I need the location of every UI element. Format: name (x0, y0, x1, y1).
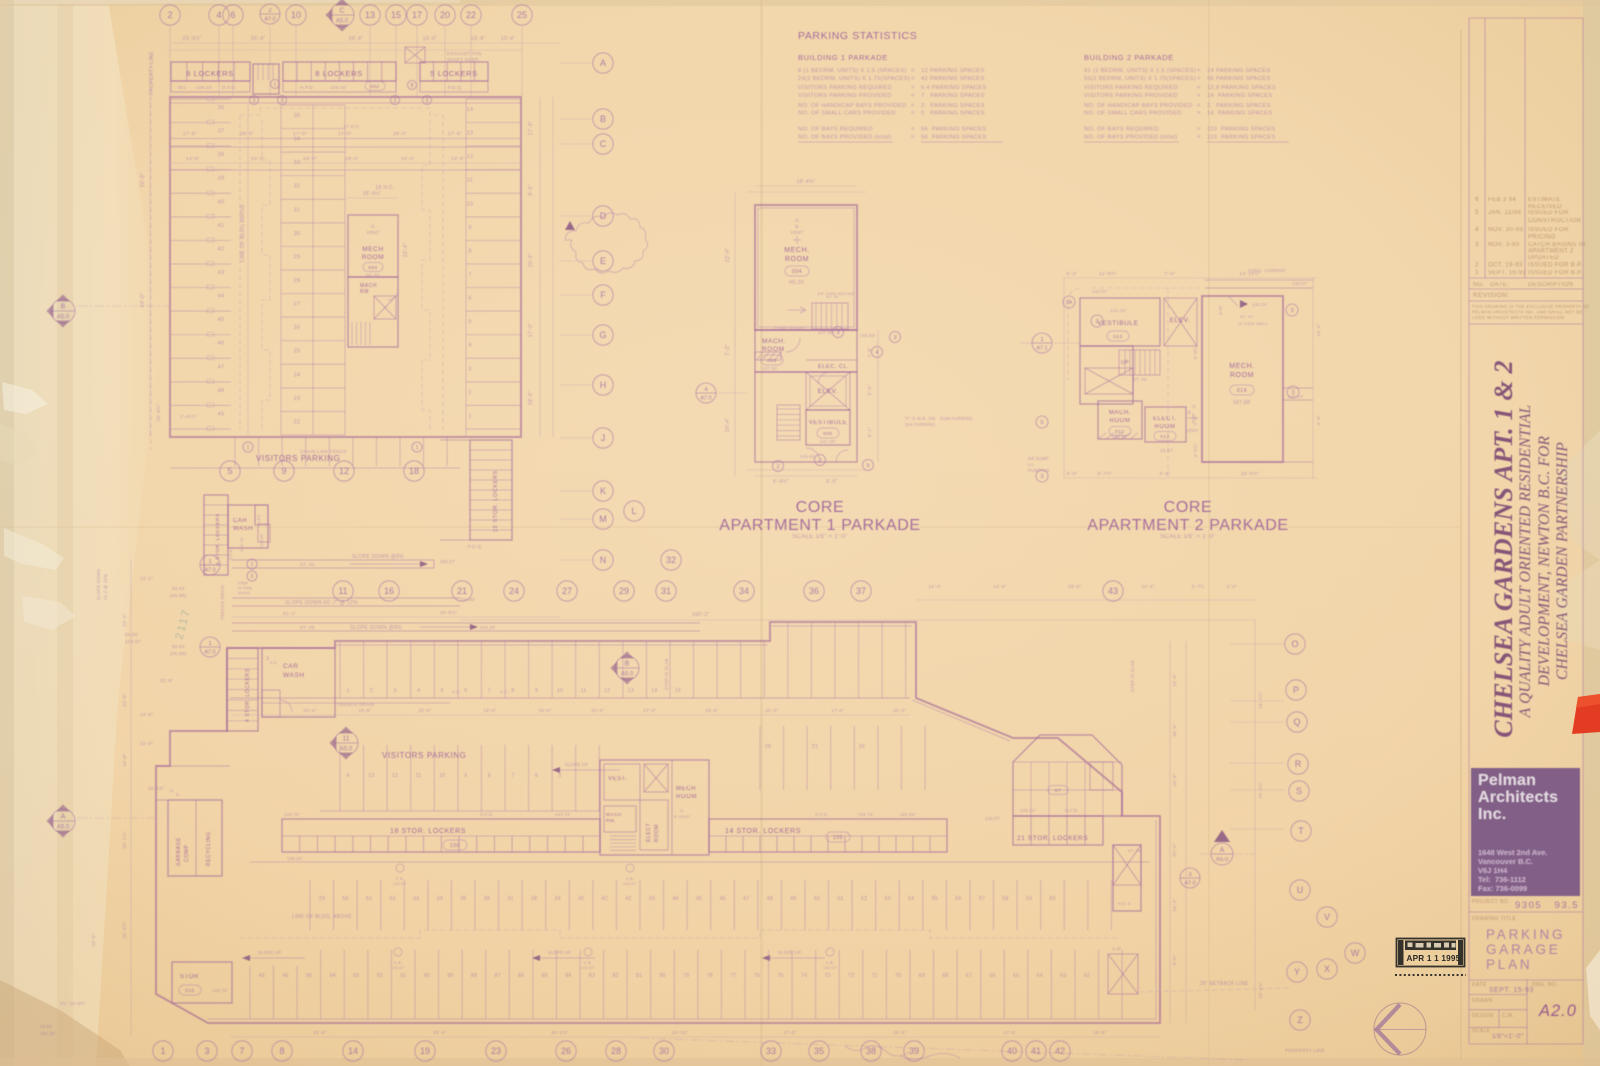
svg-text:28′-4″: 28′-4″ (349, 36, 364, 42)
svg-text:JAN. 11/94: JAN. 11/94 (1488, 210, 1522, 216)
svg-text:G.W.: G.W. (1112, 946, 1122, 951)
svg-text:½″ G.W.B. ON: ½″ G.W.B. ON (905, 416, 935, 421)
svg-text:25′-10″: 25′-10″ (148, 786, 164, 791)
svg-text:MECH: MECH (362, 246, 384, 253)
svg-text:38: 38 (866, 1046, 876, 1056)
svg-text:143.57′: 143.57′ (623, 882, 637, 886)
svg-text:17 H.C.: 17 H.C. (343, 124, 360, 129)
svg-text:DRAWN: DRAWN (1472, 998, 1493, 1004)
svg-text:52: 52 (861, 896, 867, 902)
svg-text:80: 80 (660, 973, 666, 979)
svg-text:47: 47 (218, 364, 225, 370)
svg-text:34: 34 (739, 586, 749, 596)
svg-text:=: = (1197, 127, 1201, 133)
svg-text:WASH: WASH (283, 672, 305, 679)
svg-text:APARTMENT 2: APARTMENT 2 (1528, 249, 1574, 255)
svg-text:3: 3 (1040, 474, 1043, 480)
svg-text:26′-4″: 26′-4″ (251, 36, 266, 42)
svg-text:143.74′: 143.74′ (284, 812, 300, 817)
svg-text:25′ SETBACK LINE: 25′ SETBACK LINE (1200, 981, 1249, 987)
svg-text:6′-0″: 6′-0″ (826, 479, 837, 485)
svg-text:34: 34 (294, 137, 301, 143)
svg-text:10: 10 (557, 688, 563, 694)
svg-text:SLOPE UP: SLOPE UP (258, 950, 281, 955)
svg-text:85: 85 (542, 973, 548, 979)
svg-text:above: above (238, 590, 251, 595)
svg-text:WASH: WASH (233, 526, 253, 532)
svg-text:061: 061 (178, 85, 187, 90)
svg-text:VENT: VENT (790, 230, 803, 235)
svg-text:6: 6 (230, 10, 235, 20)
svg-text:25: 25 (517, 10, 527, 20)
svg-text:25′-6″: 25′-6″ (528, 253, 534, 268)
svg-text:10′-4″: 10′-4″ (501, 36, 516, 42)
svg-text:36: 36 (484, 896, 490, 902)
svg-text:H.P.D.: H.P.D. (300, 85, 314, 90)
svg-text:A7.1: A7.1 (1036, 346, 1047, 352)
svg-text:50: 50 (814, 896, 820, 902)
svg-text:=: = (911, 76, 915, 82)
svg-text:P: P (1293, 685, 1299, 695)
svg-text:2′-41½″: 2′-41½″ (180, 413, 197, 419)
svg-text:B VENT: B VENT (674, 814, 691, 819)
svg-text:P.D.: P.D. (270, 660, 278, 665)
svg-text:76: 76 (754, 973, 760, 979)
svg-text:=: = (911, 127, 915, 133)
svg-text:4: 4 (216, 10, 221, 20)
svg-text:STOR: STOR (180, 974, 199, 980)
svg-text:S: S (1296, 786, 1302, 796)
svg-text:22′-8″: 22′-8″ (122, 693, 127, 706)
svg-text:42: 42 (625, 896, 631, 902)
svg-text:K: K (600, 486, 606, 496)
svg-text:A5.0: A5.0 (1216, 857, 1229, 863)
svg-text:2x4 FURRING: 2x4 FURRING (905, 422, 935, 427)
svg-text:DEVELOPMENT, NEWTON B.C. FOR: DEVELOPMENT, NEWTON B.C. FOR (1536, 435, 1553, 687)
svg-text:O: O (680, 808, 683, 813)
svg-text:67: 67 (966, 973, 972, 979)
svg-text:60.04: 60.04 (172, 644, 185, 649)
svg-text:APARTMENT 1 PARKADE: APARTMENT 1 PARKADE (719, 517, 920, 534)
svg-text:9: 9 (464, 773, 467, 779)
svg-text:12: 12 (467, 154, 474, 160)
svg-text:26: 26 (859, 744, 865, 750)
svg-text:25′-6″: 25′-6″ (893, 1030, 906, 1035)
svg-text:10′-5″: 10′-5″ (91, 933, 96, 946)
svg-text:ESTIMATE: ESTIMATE (1528, 197, 1561, 203)
svg-text:C.B.: C.B. (626, 877, 635, 881)
svg-text:63: 63 (1060, 973, 1066, 979)
svg-text:STEP IN SLAB: STEP IN SLAB (1130, 660, 1135, 692)
svg-text:A5.0: A5.0 (336, 19, 349, 25)
svg-text:25′-8½″: 25′-8½″ (155, 404, 161, 421)
svg-text:Fax: 736-0099: Fax: 736-0099 (1478, 884, 1527, 893)
svg-text:205.57′: 205.57′ (440, 559, 456, 564)
svg-text:C.M.: C.M. (1502, 1013, 1514, 1019)
svg-text:9: 9 (535, 688, 538, 694)
svg-text:14 PARKING SPACES: 14 PARKING SPACES (1207, 68, 1271, 74)
svg-text:005: 005 (767, 358, 776, 363)
svg-text:17′-0″: 17′-0″ (1003, 1030, 1016, 1035)
svg-text:8: 8 (279, 1046, 284, 1056)
svg-text:ELECT.: ELECT. (1153, 416, 1177, 422)
svg-text:28: 28 (611, 1046, 621, 1056)
svg-text:143.74′: 143.74′ (212, 988, 228, 993)
svg-text:26: 26 (561, 1046, 571, 1056)
svg-text:22′-0″: 22′-0″ (140, 741, 153, 746)
svg-text:=: = (1197, 76, 1201, 82)
svg-text:12: 12 (392, 773, 398, 779)
svg-text:VISITORS PARKING: VISITORS PARKING (256, 454, 340, 463)
svg-text:25′-6″: 25′-6″ (765, 708, 778, 713)
svg-text:13: 13 (368, 773, 374, 779)
svg-text:C.B.: C.B. (826, 961, 835, 965)
svg-text:STEP IN SLAB: STEP IN SLAB (664, 658, 669, 690)
svg-text:40: 40 (218, 199, 225, 205)
svg-text:APARTMENT 2 PARKADE: APARTMENT 2 PARKADE (1087, 517, 1288, 534)
svg-text:SCALE 1⁄8″ = 1′-0″: SCALE 1⁄8″ = 1′-0″ (792, 534, 848, 540)
svg-text:31: 31 (507, 896, 513, 902)
svg-text:22: 22 (466, 10, 476, 20)
svg-text:P.D.Q.: P.D.Q. (448, 85, 463, 90)
svg-text:6: 6 (1475, 196, 1479, 203)
svg-text:38: 38 (531, 896, 537, 902)
svg-text:W: W (1351, 948, 1360, 958)
svg-text:Pelman: Pelman (1478, 772, 1536, 789)
svg-text:8: 8 (468, 248, 471, 254)
svg-text:LINE OF BLDG. ABOVE: LINE OF BLDG. ABOVE (292, 914, 352, 920)
svg-text:71: 71 (872, 973, 878, 979)
svg-text:56: 56 (955, 896, 961, 902)
svg-text:68: 68 (942, 973, 948, 979)
svg-text:EXHAUST FAN: EXHAUST FAN (447, 51, 481, 56)
svg-text:004: 004 (368, 265, 377, 270)
svg-text:22′-4″: 22′-4″ (725, 248, 731, 263)
svg-text:A7.0: A7.0 (204, 650, 215, 656)
svg-text:146.83′: 146.83′ (800, 454, 816, 459)
svg-text:VISITORS PARKING PROVIDED: VISITORS PARKING PROVIDED (1084, 93, 1178, 99)
svg-text:29: 29 (294, 254, 301, 260)
svg-text:2: 2 (1475, 262, 1479, 269)
svg-text:90: 90 (424, 973, 430, 979)
svg-text:24′-10″: 24′-10″ (672, 1030, 688, 1035)
svg-text:147.00′: 147.00′ (818, 330, 834, 335)
svg-text:SHAFT OVER: SHAFT OVER (447, 57, 479, 62)
svg-text:=: = (911, 111, 915, 117)
svg-text:65: 65 (1013, 973, 1019, 979)
svg-text:2: 2 (167, 10, 172, 20)
svg-text:2 PARKING SPACES: 2 PARKING SPACES (1207, 103, 1271, 109)
svg-text:PUMPING: PUMPING (1028, 468, 1050, 473)
svg-text:46: 46 (282, 973, 288, 979)
svg-text:21: 21 (457, 586, 467, 596)
svg-text:14′-6″: 14′-6″ (993, 584, 1006, 589)
svg-text:9: 9 (281, 466, 286, 476)
svg-text:8′-7½″: 8′-7½″ (1097, 470, 1112, 477)
svg-text:14: 14 (467, 107, 474, 113)
svg-text:OCT. 19-93: OCT. 19-93 (1488, 263, 1523, 269)
svg-text:21: 21 (812, 744, 818, 750)
svg-text:3: 3 (1475, 241, 1479, 248)
svg-text:100: 100 (450, 843, 460, 849)
svg-text:29: 29 (619, 586, 629, 596)
svg-text:ROOM: ROOM (676, 794, 697, 800)
svg-text:57: 57 (979, 896, 985, 902)
svg-text:O: O (1192, 404, 1196, 409)
svg-text:12: 12 (339, 466, 349, 476)
svg-text:37′-1″: 37′-1″ (1172, 843, 1177, 856)
svg-text:45: 45 (696, 896, 702, 902)
svg-text:14 PARKING SPACES: 14 PARKING SPACES (1207, 93, 1272, 99)
svg-text:SEPT. 16-93: SEPT. 16-93 (1488, 270, 1526, 276)
svg-text:15′-6½″: 15′-6½″ (1241, 470, 1259, 477)
svg-text:A5.0: A5.0 (57, 315, 70, 321)
svg-text:ST. #5: ST. #5 (300, 625, 315, 630)
svg-text:18′-4½″: 18′-4½″ (797, 178, 816, 185)
svg-text:NO. OF HANDICAP BAYS PROVIDED: NO. OF HANDICAP BAYS PROVIDED (798, 103, 907, 109)
svg-text:RM: RM (360, 289, 369, 295)
svg-text:19′-8″: 19′-8″ (451, 156, 465, 162)
svg-text:7: 7 (239, 1046, 244, 1056)
svg-text:C.B.: C.B. (396, 877, 405, 881)
svg-text:TRENCH DRAIN: TRENCH DRAIN (337, 702, 375, 707)
svg-text:DESCRIPTION: DESCRIPTION (1528, 282, 1573, 288)
svg-text:O: O (1291, 639, 1298, 649)
svg-text:NO. OF BAYS PROVIDED (total): NO. OF BAYS PROVIDED (total) (1084, 135, 1177, 141)
svg-text:17′-0″: 17′-0″ (783, 1030, 796, 1035)
svg-text:=: = (911, 68, 915, 74)
svg-text:9′-1″: 9′-1″ (867, 427, 872, 438)
svg-text:14′-8″: 14′-8″ (186, 156, 200, 162)
svg-text:6: 6 (468, 296, 471, 302)
svg-text:A2.0: A2.0 (1538, 1002, 1577, 1020)
svg-text:20′-6″: 20′-6″ (591, 708, 604, 713)
svg-text:140.24′: 140.24′ (1020, 808, 1036, 813)
svg-text:18: 18 (409, 466, 419, 476)
svg-text:7: 7 (468, 272, 471, 278)
svg-text:23: 23 (491, 1046, 501, 1056)
svg-text:8: 8 (511, 688, 514, 694)
svg-text:1: 1 (1475, 269, 1479, 276)
svg-text:PROPERTY LINE: PROPERTY LINE (1285, 1048, 1325, 1053)
svg-text:ST. #6: ST. #6 (1128, 848, 1142, 853)
svg-text:19′-6½″: 19′-6½″ (440, 609, 457, 615)
svg-text:82: 82 (612, 973, 618, 979)
svg-text:RECYCLING: RECYCLING (206, 831, 212, 866)
svg-text:204.28′: 204.28′ (480, 625, 496, 630)
svg-text:BUILDING 1 PARKADE: BUILDING 1 PARKADE (798, 53, 888, 62)
svg-text:4: 4 (417, 688, 420, 694)
svg-text:1: 1 (251, 562, 254, 568)
svg-text:=: = (1197, 103, 1201, 109)
svg-text:11: 11 (467, 178, 473, 184)
svg-text:ROOM: ROOM (654, 824, 660, 842)
svg-text:25′-6″: 25′-6″ (418, 708, 431, 713)
svg-text:49: 49 (218, 411, 225, 417)
svg-text:07: 07 (1055, 788, 1061, 793)
svg-text:013: 013 (1113, 334, 1122, 339)
svg-text:28′-0″: 28′-0″ (393, 131, 407, 137)
svg-text:12′-8½″: 12′-8½″ (1099, 270, 1117, 277)
svg-text:UPDATED: UPDATED (1528, 255, 1559, 261)
svg-text:38: 38 (218, 152, 225, 158)
svg-text:L: L (631, 506, 636, 516)
svg-text:14′-4″: 14′-4″ (1316, 323, 1321, 336)
svg-text:9′-0½″: 9′-0½″ (1192, 345, 1198, 360)
svg-text:1: 1 (416, 445, 419, 451)
svg-text:NOV. 3-93: NOV. 3-93 (1488, 242, 1520, 248)
svg-text:SCALE: SCALE (1472, 1028, 1491, 1034)
svg-text:=: = (911, 135, 915, 141)
svg-text:143.74′: 143.74′ (239, 537, 244, 552)
svg-text:X: X (1324, 964, 1330, 974)
svg-text:¾″ FIRE WALL: ¾″ FIRE WALL (1238, 321, 1269, 326)
svg-text:5 LOCKERS: 5 LOCKERS (430, 69, 478, 78)
svg-text:3: 3 (1290, 308, 1293, 314)
svg-text:50: 50 (342, 896, 348, 902)
svg-text:74: 74 (801, 973, 807, 979)
svg-text:143.57′: 143.57′ (581, 966, 595, 970)
svg-text:ROOM: ROOM (1230, 372, 1254, 379)
svg-text:BUILDING 2 PARKADE: BUILDING 2 PARKADE (1084, 53, 1174, 62)
svg-text:UP: UP (1121, 360, 1129, 366)
svg-text:ELEV.: ELEV. (1170, 317, 1191, 324)
svg-text:93: 93 (353, 973, 359, 979)
svg-text:140.07′: 140.07′ (1292, 281, 1308, 286)
svg-text:3: 3 (204, 1046, 209, 1056)
svg-text:3: 3 (468, 366, 471, 372)
svg-text:1: 1 (346, 688, 349, 694)
svg-text:P.D.Q: P.D.Q (468, 544, 481, 549)
svg-text:C: C (600, 139, 607, 149)
svg-text:17′-0″: 17′-0″ (528, 323, 534, 338)
svg-text:THIS DRAWING IS THE EXCLUSIVE: THIS DRAWING IS THE EXCLUSIVE PROPERTY O… (1472, 304, 1590, 309)
svg-text:NO. OF HANDICAP BAYS PROVIDED: NO. OF HANDICAP BAYS PROVIDED (1084, 103, 1193, 109)
svg-text:47: 47 (743, 896, 749, 902)
svg-text:5: 5 (1475, 209, 1479, 216)
svg-text:161.84′: 161.84′ (900, 812, 916, 817)
svg-text:4′-6″: 4′-6″ (1218, 305, 1223, 315)
svg-text:8 (1 BEDRM. UNITS) X 1.5 (SPAC: 8 (1 BEDRM. UNITS) X 1.5 (SPACES) (798, 68, 907, 74)
svg-text:92: 92 (377, 973, 383, 979)
svg-text:94: 94 (330, 973, 336, 979)
svg-text:CORE: CORE (1164, 499, 1213, 516)
svg-text:2′-0″: 2′-0″ (1227, 584, 1238, 589)
svg-text:11: 11 (581, 688, 587, 694)
svg-text:SLOPE UP: SLOPE UP (548, 950, 571, 955)
svg-text:33: 33 (413, 896, 419, 902)
svg-text:S.C.: S.C. (500, 689, 509, 694)
svg-text:PLAN: PLAN (1486, 957, 1532, 972)
svg-text:2½″ 14′-8½″: 2½″ 14′-8½″ (60, 1001, 86, 1006)
svg-text:56 PARKING SPACES: 56 PARKING SPACES (921, 135, 986, 141)
svg-text:DATE: DATE (1472, 982, 1487, 988)
svg-text:23′-3½″: 23′-3½″ (183, 35, 202, 42)
svg-text:N: N (600, 555, 607, 565)
svg-text:1648 West 2nd Ave.: 1648 West 2nd Ave. (1478, 848, 1547, 857)
svg-text:1⁄8″=1′-0″: 1⁄8″=1′-0″ (1492, 1033, 1524, 1040)
svg-text:7′-4″: 7′-4″ (1164, 271, 1175, 277)
svg-text:PELMAN ARCHITECTS INC. AND SHA: PELMAN ARCHITECTS INC. AND SHALL NOT BE (1472, 310, 1583, 315)
svg-text:143.74′: 143.74′ (555, 812, 571, 817)
svg-text:PARKING STATISTICS: PARKING STATISTICS (798, 30, 917, 42)
svg-text:M: M (599, 514, 607, 524)
svg-text:13: 13 (365, 10, 375, 20)
svg-text:56 PARKING SPACES: 56 PARKING SPACES (921, 127, 986, 133)
svg-text:88: 88 (471, 973, 477, 979)
svg-text:5: 5 (468, 319, 471, 325)
svg-text:54.00: 54.00 (125, 632, 138, 637)
svg-text:LA: LA (1028, 462, 1034, 467)
svg-text:23′-2″: 23′-2″ (140, 576, 153, 581)
svg-text:24′-1½″: 24′-1½″ (551, 1029, 568, 1035)
svg-text:Vancouver B.C.: Vancouver B.C. (1478, 857, 1533, 866)
svg-text:4C: 4C (601, 896, 608, 902)
svg-text:U: U (1297, 885, 1304, 895)
svg-text:4: 4 (1475, 226, 1479, 233)
svg-text:O.F.D.: O.F.D. (1065, 808, 1079, 813)
svg-text:10: 10 (467, 201, 474, 207)
svg-text:6′-6″: 6′-6″ (867, 385, 872, 396)
svg-text:B: B (61, 304, 66, 311)
svg-text:7: 7 (511, 773, 514, 779)
svg-text:25′-6″: 25′-6″ (893, 708, 906, 713)
svg-text:CONC. CURBING: CONC. CURBING (1248, 268, 1286, 273)
svg-text:SLOPE UP: SLOPE UP (565, 762, 588, 767)
svg-text:1: 1 (468, 413, 471, 419)
svg-text:5: 5 (227, 466, 232, 476)
svg-text:ISSUED FOR: ISSUED FOR (1528, 227, 1569, 233)
svg-text:34.2 @ 10%: 34.2 @ 10% (103, 574, 108, 600)
svg-text:46: 46 (720, 896, 726, 902)
svg-text:32: 32 (294, 184, 301, 190)
svg-text:J: J (601, 433, 606, 443)
svg-text:VENT: VENT (366, 230, 379, 235)
svg-text:2: 2 (1095, 319, 1098, 325)
svg-text:25′-0″: 25′-0″ (1068, 584, 1081, 589)
svg-text:13: 13 (467, 131, 474, 137)
svg-text:ST. #6: ST. #6 (1133, 377, 1147, 382)
svg-text:21 STOR. LOCKERS: 21 STOR. LOCKERS (1017, 835, 1088, 842)
svg-text:23′-2″: 23′-2″ (122, 613, 127, 626)
svg-text:3: 3 (251, 574, 254, 580)
svg-text:5: 5 (1040, 420, 1043, 426)
svg-text:Inc.: Inc. (1478, 806, 1506, 823)
svg-text:2: 2 (370, 688, 373, 694)
svg-text:O.F.D.: O.F.D. (815, 812, 829, 817)
svg-text:CAR: CAR (233, 518, 248, 524)
svg-text:004: 004 (792, 269, 802, 275)
svg-text:42: 42 (1055, 1046, 1065, 1056)
svg-text:6: 6 (464, 688, 467, 694)
svg-text:15′-0″: 15′-0″ (1172, 673, 1177, 686)
svg-text:H5.25′: H5.25′ (789, 280, 805, 286)
svg-text:1: 1 (247, 445, 250, 451)
svg-text:24′-4½″: 24′-4½″ (1257, 981, 1263, 998)
svg-text:6: 6 (535, 773, 538, 779)
svg-text:O: O (795, 218, 799, 223)
svg-text:A7.0: A7.0 (204, 568, 215, 574)
svg-text:41: 41 (218, 223, 225, 229)
svg-text:26′-1½″: 26′-1½″ (1257, 691, 1263, 708)
svg-text:6.4 PARKING SPACES: 6.4 PARKING SPACES (921, 85, 986, 91)
svg-text:ISSUED FOR: ISSUED FOR (1528, 210, 1569, 216)
svg-text:SLOPE DOWN 60′-7″ @ 12%: SLOPE DOWN 60′-7″ @ 12% (285, 600, 358, 606)
svg-text:25′-1½″: 25′-1½″ (121, 831, 127, 848)
svg-text:42: 42 (218, 246, 225, 252)
svg-text:14′-4″: 14′-4″ (928, 584, 941, 589)
svg-text:T: T (1298, 826, 1304, 836)
